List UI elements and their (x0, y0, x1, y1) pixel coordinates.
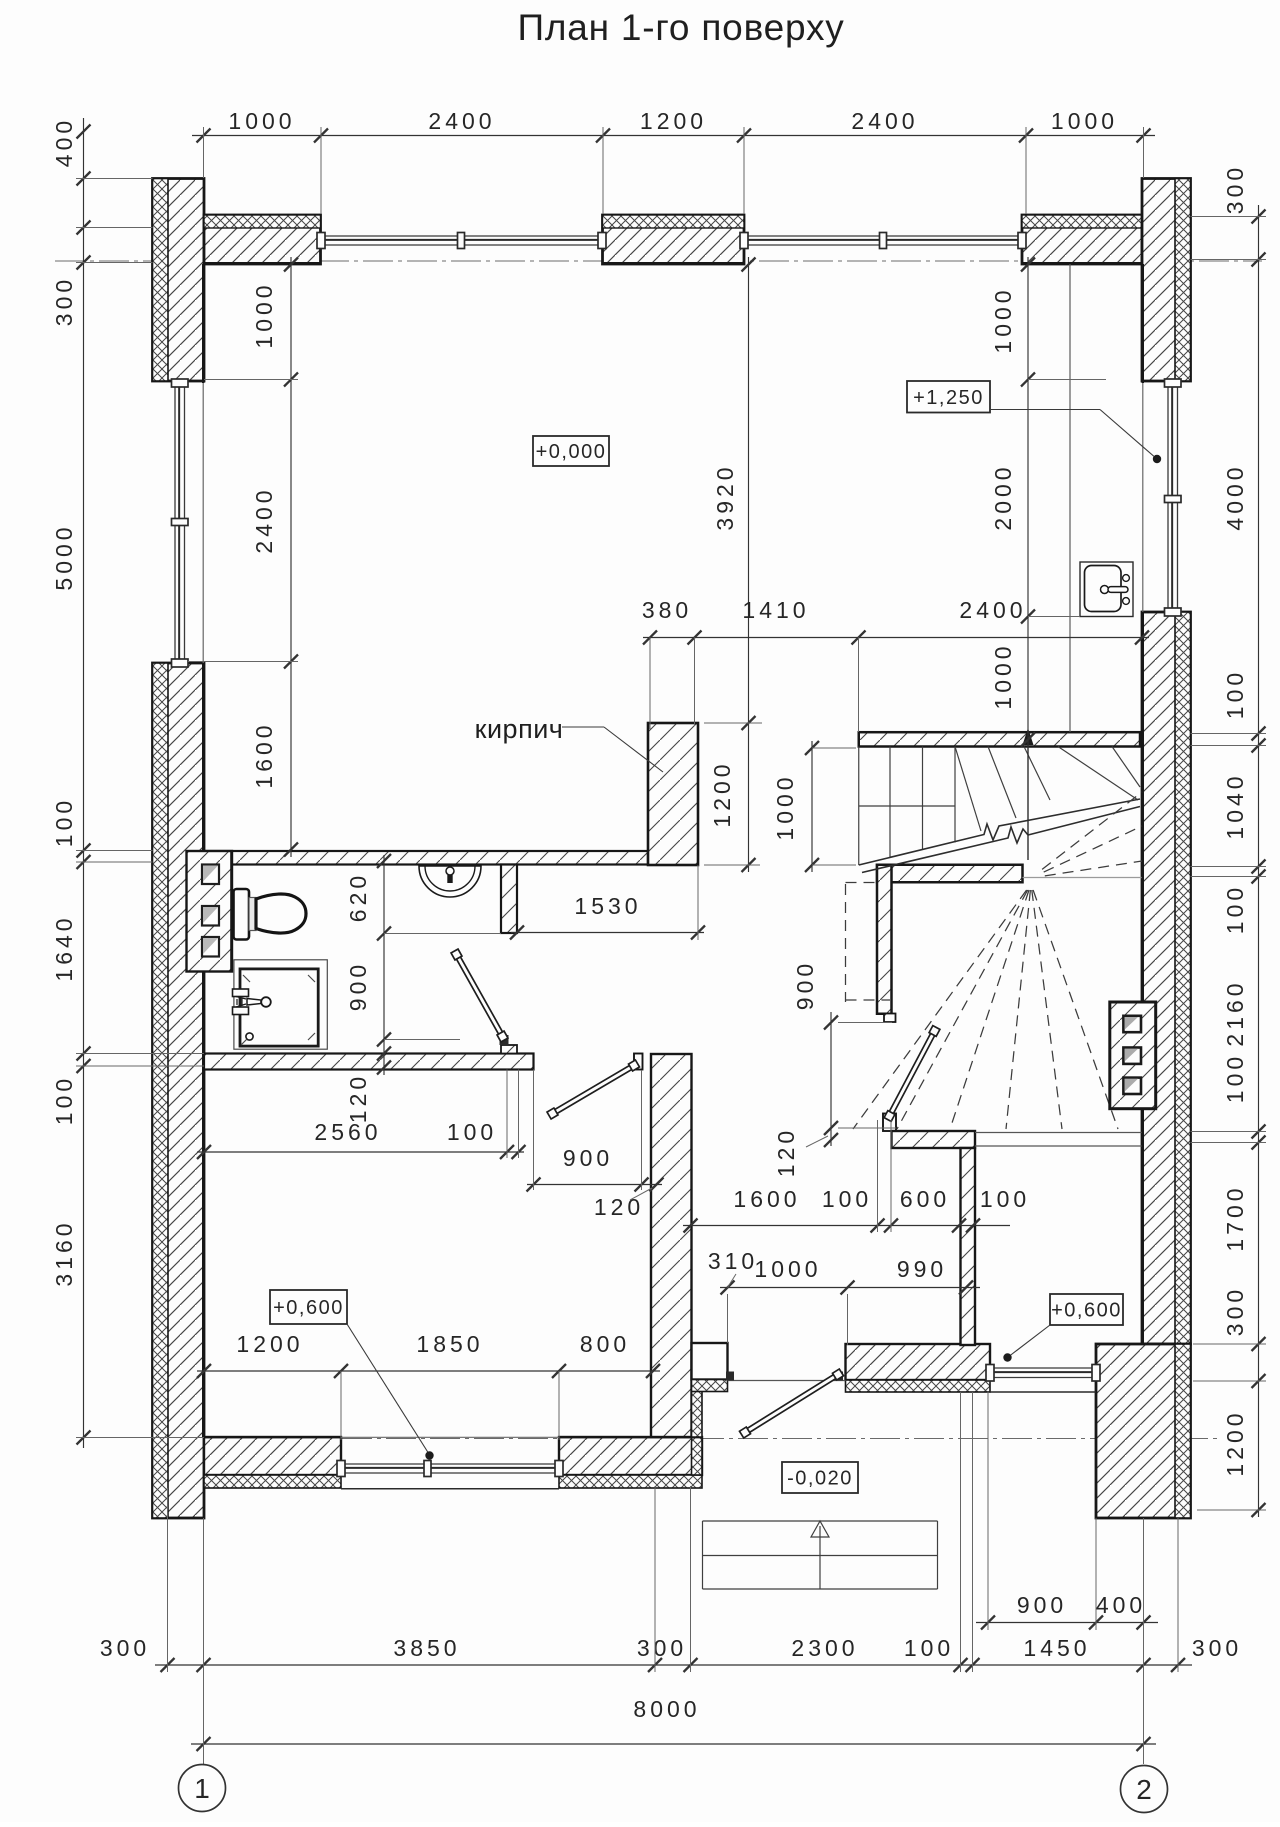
svg-text:100: 100 (822, 1186, 872, 1212)
svg-text:1850: 1850 (416, 1331, 483, 1357)
svg-text:1700: 1700 (1222, 1184, 1248, 1251)
svg-text:1200: 1200 (236, 1331, 303, 1357)
svg-text:1450: 1450 (1023, 1635, 1090, 1661)
svg-text:1640: 1640 (51, 914, 77, 981)
svg-text:2160: 2160 (1222, 979, 1248, 1046)
svg-text:300: 300 (51, 276, 77, 326)
svg-text:1000: 1000 (990, 286, 1016, 353)
svg-text:1000: 1000 (754, 1256, 821, 1282)
svg-text:+0,600: +0,600 (1051, 1300, 1122, 1322)
svg-text:1200: 1200 (709, 760, 735, 827)
svg-text:100: 100 (51, 797, 77, 847)
svg-text:300: 300 (1222, 164, 1248, 214)
svg-text:2400: 2400 (959, 597, 1026, 623)
svg-text:5000: 5000 (51, 523, 77, 590)
svg-text:900: 900 (563, 1145, 613, 1171)
svg-text:400: 400 (1096, 1592, 1146, 1618)
svg-text:100: 100 (1222, 669, 1248, 719)
svg-text:1000: 1000 (772, 773, 798, 840)
svg-text:2560: 2560 (314, 1119, 381, 1145)
svg-text:120: 120 (773, 1127, 799, 1177)
svg-text:1: 1 (194, 1773, 210, 1804)
svg-text:900: 900 (792, 960, 818, 1010)
svg-text:100: 100 (904, 1635, 954, 1661)
svg-text:310: 310 (708, 1248, 758, 1274)
svg-text:380: 380 (642, 597, 692, 623)
svg-text:120: 120 (345, 1073, 371, 1123)
svg-text:900: 900 (1017, 1592, 1067, 1618)
svg-text:100: 100 (51, 1075, 77, 1125)
svg-text:100: 100 (1222, 1053, 1248, 1103)
svg-text:400: 400 (51, 117, 77, 167)
svg-text:1530: 1530 (574, 893, 641, 919)
svg-text:2400: 2400 (251, 486, 277, 553)
svg-text:2000: 2000 (990, 463, 1016, 530)
svg-text:600: 600 (900, 1186, 950, 1212)
svg-text:1000: 1000 (990, 642, 1016, 709)
svg-text:1600: 1600 (733, 1186, 800, 1212)
svg-text:120: 120 (594, 1194, 644, 1220)
svg-text:+1,250: +1,250 (913, 387, 984, 409)
svg-text:2300: 2300 (791, 1635, 858, 1661)
svg-text:кирпич: кирпич (475, 714, 564, 744)
svg-text:300: 300 (100, 1635, 150, 1661)
svg-text:100: 100 (1222, 884, 1248, 934)
svg-text:3160: 3160 (51, 1219, 77, 1286)
svg-text:3850: 3850 (393, 1635, 460, 1661)
svg-text:1600: 1600 (251, 721, 277, 788)
svg-text:990: 990 (897, 1256, 947, 1282)
svg-text:1000: 1000 (228, 108, 295, 134)
svg-text:2400: 2400 (851, 108, 918, 134)
svg-text:+0,000: +0,000 (536, 441, 607, 463)
svg-text:2: 2 (1136, 1774, 1152, 1805)
svg-text:1040: 1040 (1222, 772, 1248, 839)
svg-text:100: 100 (980, 1186, 1030, 1212)
svg-text:1410: 1410 (742, 597, 809, 623)
svg-text:1200: 1200 (640, 108, 707, 134)
svg-text:План 1-го поверху: План 1-го поверху (517, 7, 844, 48)
svg-text:1000: 1000 (1051, 108, 1118, 134)
svg-text:4000: 4000 (1222, 463, 1248, 530)
svg-text:620: 620 (345, 872, 371, 922)
svg-text:2400: 2400 (428, 108, 495, 134)
svg-text:800: 800 (580, 1331, 630, 1357)
svg-text:900: 900 (345, 961, 371, 1011)
svg-text:8000: 8000 (633, 1696, 700, 1722)
svg-text:1200: 1200 (1222, 1409, 1248, 1476)
svg-text:3920: 3920 (712, 463, 738, 530)
svg-text:100: 100 (447, 1119, 497, 1145)
svg-text:300: 300 (637, 1635, 687, 1661)
svg-text:300: 300 (1222, 1286, 1248, 1336)
svg-text:1000: 1000 (251, 281, 277, 348)
svg-text:300: 300 (1192, 1635, 1242, 1661)
svg-text:+0,600: +0,600 (273, 1297, 344, 1319)
svg-text:-0,020: -0,020 (787, 1468, 853, 1490)
